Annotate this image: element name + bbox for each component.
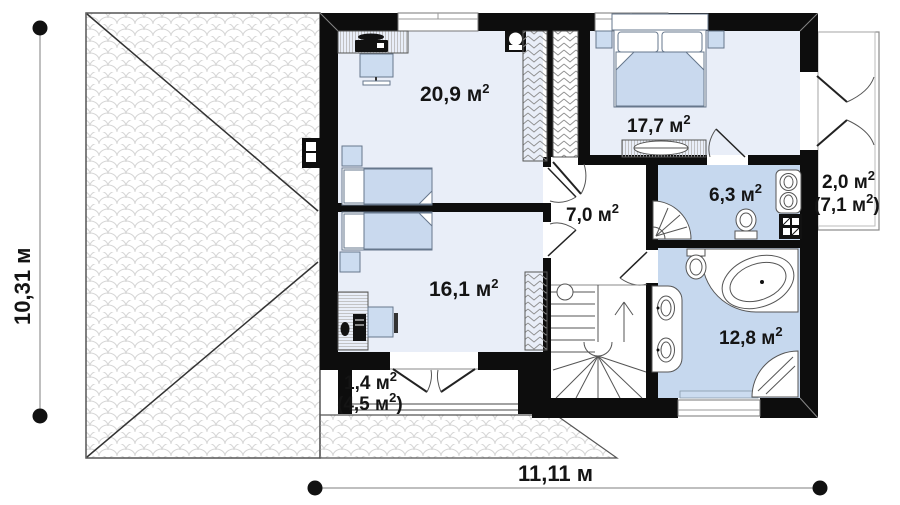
stair-direction-arrow	[615, 302, 633, 342]
dimension-height: 10,31 м	[10, 21, 48, 424]
headboard	[612, 14, 708, 30]
floor-plan-canvas: 20,9 м2 17,7 м2 7,0 м2 6,3 м2 16,1 м2 12…	[0, 0, 900, 505]
toilet-icon	[735, 209, 757, 239]
wall-hall-north	[748, 155, 800, 165]
dresser	[622, 140, 706, 157]
label-bedroom-top-left: 20,9 м2	[420, 81, 489, 106]
door-bedroom-bottom-left	[548, 223, 576, 256]
wall-bottom-left	[320, 352, 390, 370]
label-hall: 7,0 м2	[566, 201, 619, 226]
wall-bottom	[532, 398, 678, 418]
boiler-icon	[779, 214, 802, 239]
wall-left	[320, 13, 338, 370]
french-doors-balcony-bottom	[393, 369, 475, 392]
window	[678, 391, 760, 416]
wall-closet-divider	[547, 31, 553, 157]
svg-text:(4,5 м2): (4,5 м2)	[337, 390, 403, 415]
wall-closet-east	[578, 31, 590, 165]
floor-plan: 20,9 м2 17,7 м2 7,0 м2 6,3 м2 16,1 м2 12…	[0, 0, 900, 505]
pillow	[618, 32, 658, 52]
pillow	[344, 214, 364, 248]
nightstand	[596, 31, 612, 48]
dimension-width: 11,11 м	[308, 461, 828, 496]
label-bedroom-bottom-left: 16,1 м2	[429, 276, 498, 301]
wall-between-bathrooms	[658, 240, 800, 248]
nightstand	[342, 146, 362, 166]
dimension-width-label: 11,11 м	[518, 461, 593, 486]
wall-balcony-right	[518, 352, 532, 414]
label-bedroom-top-right: 17,7 м2	[627, 112, 691, 137]
label-bathroom-small: 6,3 м2	[709, 181, 762, 206]
roof-bottom	[320, 415, 617, 458]
dimension-height-label: 10,31 м	[10, 248, 35, 325]
washing-machine-icon	[776, 170, 801, 213]
wall-hall-west	[543, 203, 551, 222]
bed	[342, 212, 432, 250]
printer-icon	[355, 34, 388, 53]
roof-left	[86, 13, 320, 458]
window	[398, 13, 478, 31]
wardrobe	[523, 31, 547, 161]
door-bathroom-large	[620, 252, 647, 285]
pillow	[344, 170, 364, 203]
wall-right-lower	[800, 150, 818, 418]
monitor-icon	[368, 307, 393, 337]
label-bathroom-large: 12,8 м2	[719, 324, 783, 349]
wardrobe	[553, 31, 578, 157]
staircase	[551, 284, 646, 398]
label-balcony-bottom: 1,4 м2 (4,5 м2)	[337, 369, 403, 415]
wall-top	[320, 13, 818, 31]
svg-text:2,0 м2: 2,0 м2	[822, 168, 875, 193]
pillow	[662, 32, 702, 52]
wardrobe	[525, 272, 547, 350]
bed	[342, 168, 432, 205]
newel-post	[557, 284, 573, 300]
toilet-icon	[686, 249, 706, 279]
nightstand	[708, 31, 724, 48]
nightstand	[340, 252, 360, 272]
double-bed	[612, 14, 708, 107]
sink-counter	[652, 286, 682, 372]
